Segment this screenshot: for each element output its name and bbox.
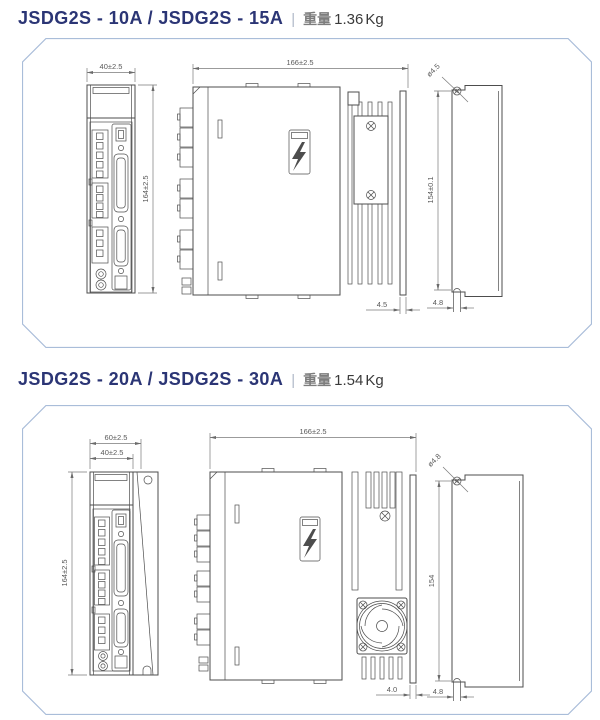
section-2-title: JSDG2S - 20A / JSDG2S - 30A | 重量 1.54 Kg <box>18 369 384 390</box>
svg-text:60±2.5: 60±2.5 <box>105 433 128 442</box>
svg-text:4.8: 4.8 <box>433 298 443 307</box>
svg-text:40±2.5: 40±2.5 <box>100 62 123 71</box>
weight-unit: Kg <box>365 11 383 28</box>
title-separator: | <box>291 372 295 389</box>
svg-text:164±2.5: 164±2.5 <box>141 175 150 202</box>
svg-text:166±2.5: 166±2.5 <box>299 427 326 436</box>
dimension-drawing-1: 40±2.5 164±2.5 <box>22 38 592 348</box>
fan-icon <box>357 598 407 654</box>
section-1-title: JSDG2S - 10A / JSDG2S - 15A | 重量 1.36 Kg <box>18 8 384 29</box>
svg-text:164±2.5: 164±2.5 <box>60 559 69 586</box>
svg-text:154: 154 <box>427 575 436 588</box>
weight-label: 重量 <box>303 370 331 390</box>
title-separator: | <box>291 11 295 28</box>
svg-text:154±0.1: 154±0.1 <box>426 176 435 203</box>
svg-text:4.0: 4.0 <box>387 685 397 694</box>
mounting-plate <box>354 116 388 204</box>
svg-text:166±2.5: 166±2.5 <box>286 58 313 67</box>
svg-text:40±2.5: 40±2.5 <box>101 448 124 457</box>
model-name-2: JSDG2S - 20A / JSDG2S - 30A <box>18 369 283 390</box>
dimension-drawing-2: 60±2.5 40±2.5 164±2.5 <box>22 405 592 715</box>
model-name-1: JSDG2S - 10A / JSDG2S - 15A <box>18 8 283 29</box>
weight-value: 1.36 <box>334 11 363 28</box>
drawing-panel-2: 60±2.5 40±2.5 164±2.5 <box>22 405 592 715</box>
svg-text:4.8: 4.8 <box>433 687 443 696</box>
weight-unit: Kg <box>365 372 383 389</box>
weight-label: 重量 <box>303 9 331 29</box>
drawing-panel-1: 40±2.5 164±2.5 <box>22 38 592 348</box>
weight-value: 1.54 <box>334 372 363 389</box>
svg-text:4.5: 4.5 <box>377 300 387 309</box>
